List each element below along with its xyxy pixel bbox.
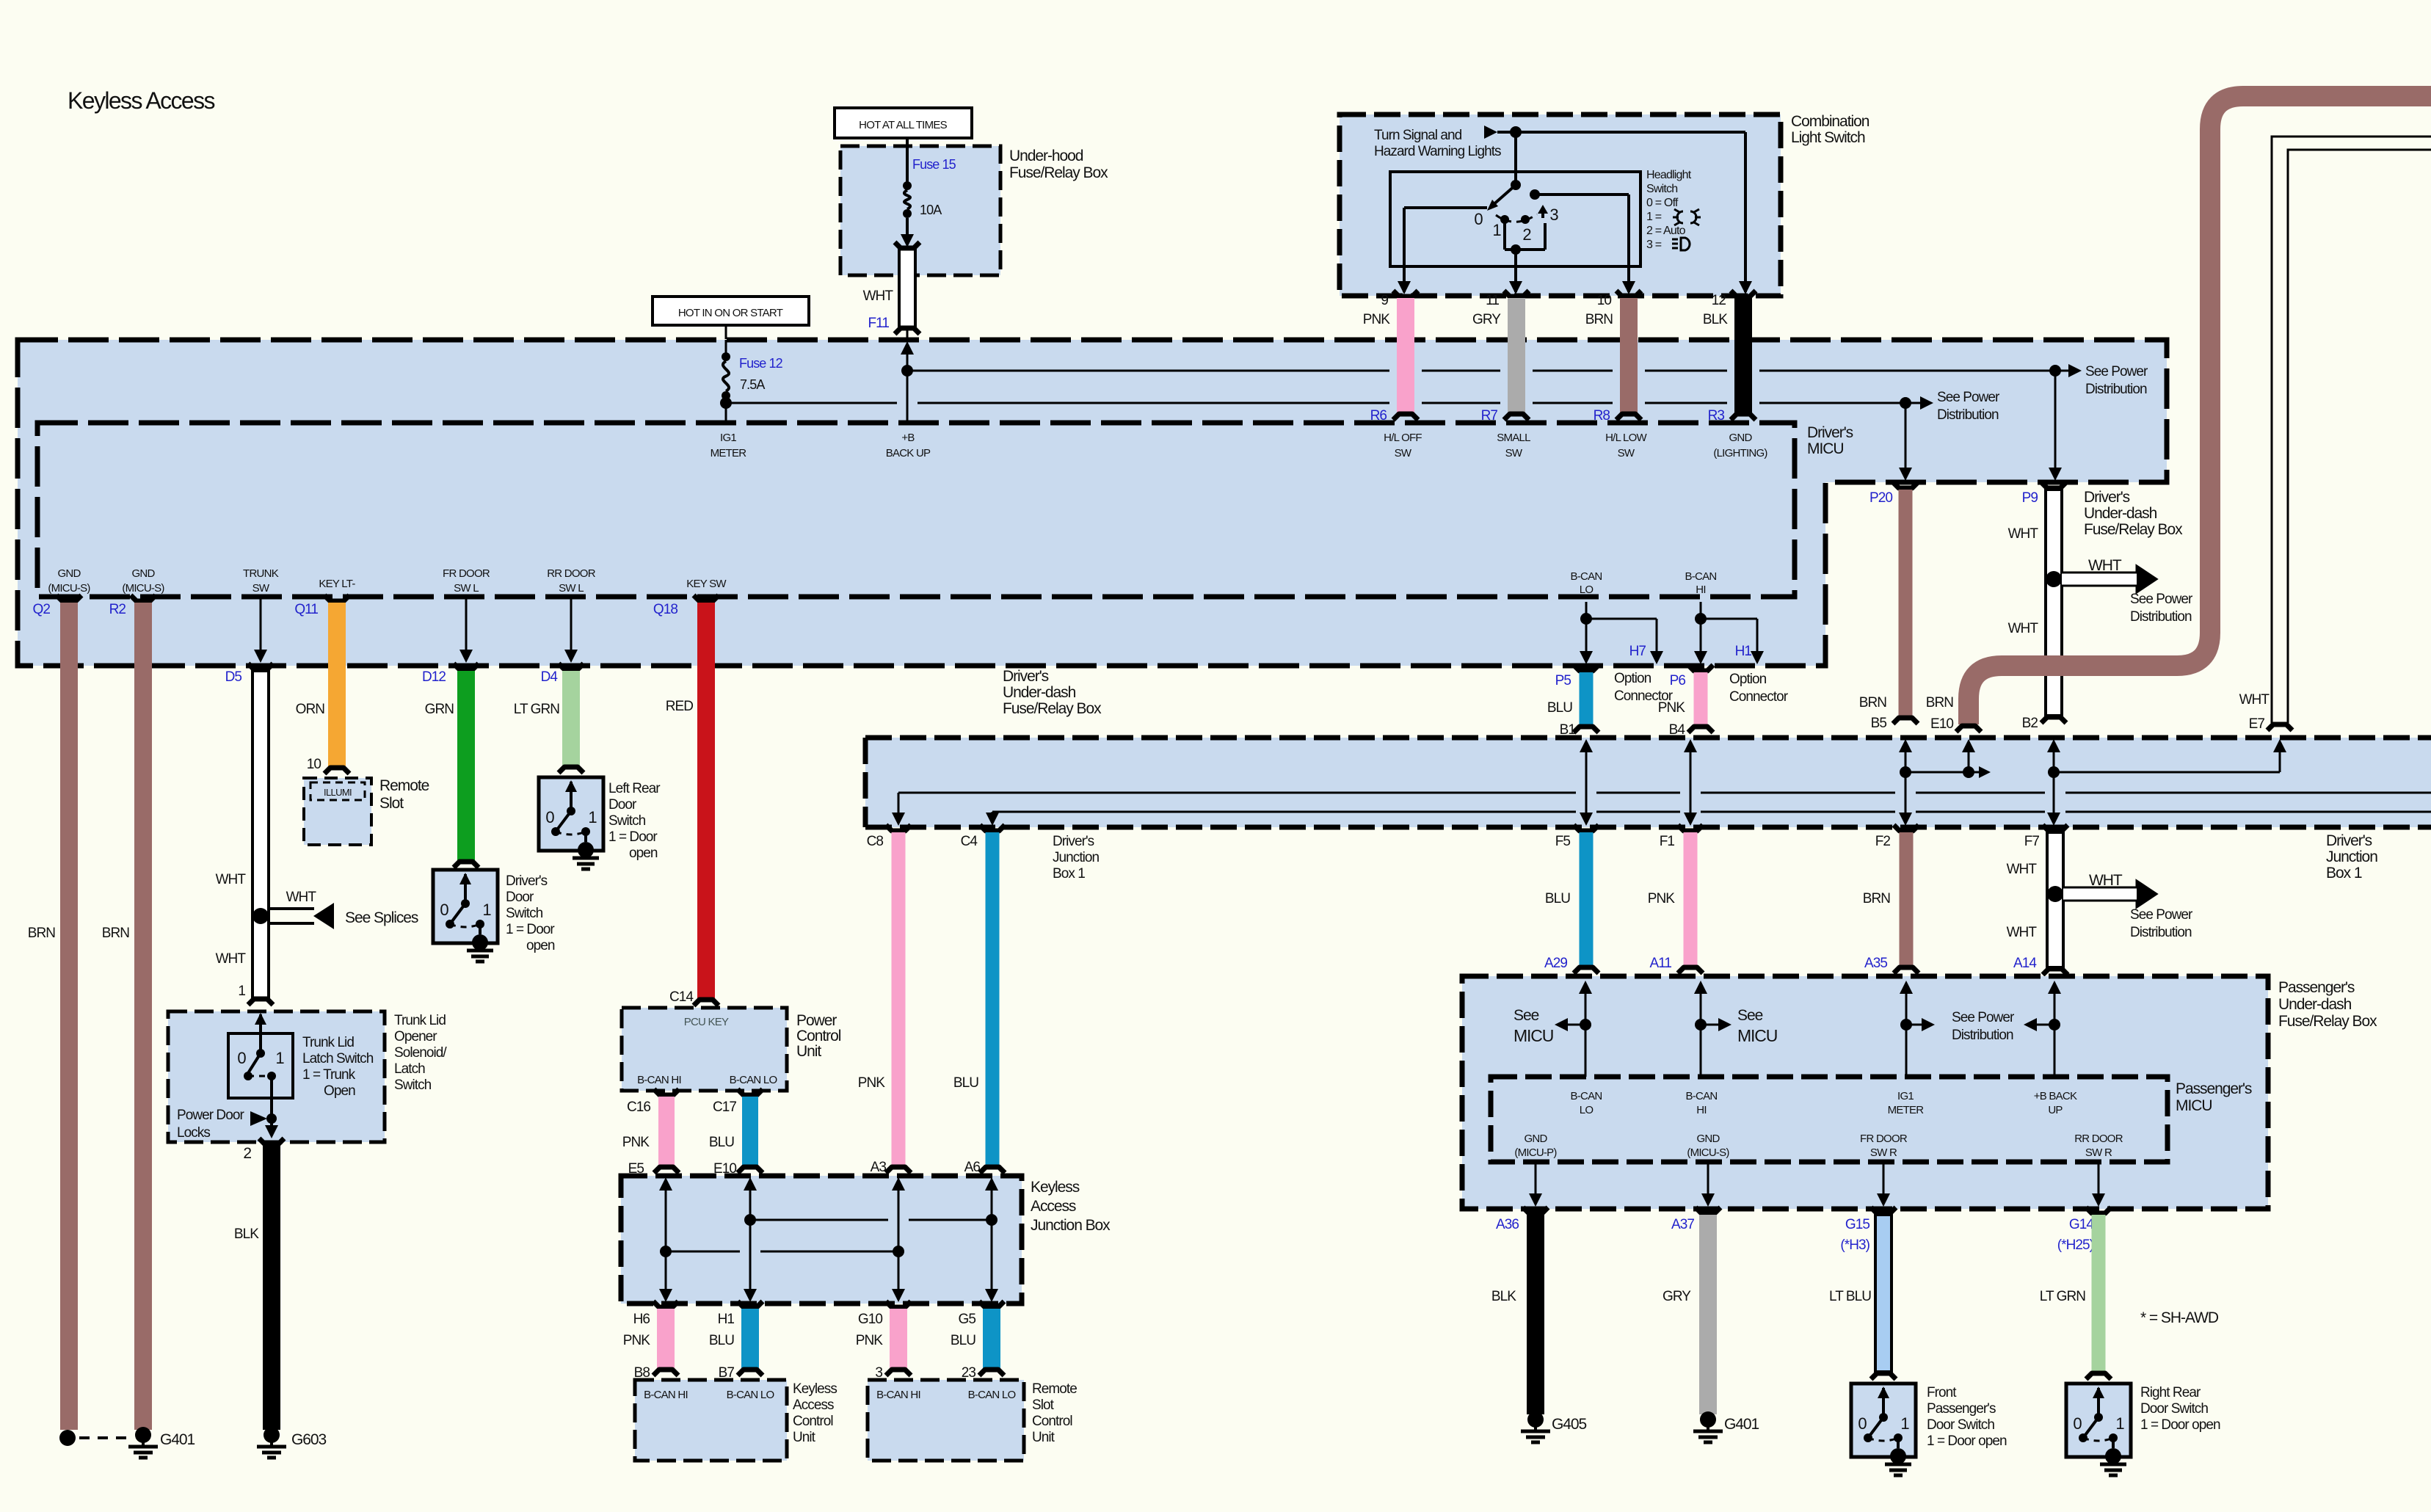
svg-text:Light Switch: Light Switch (1791, 129, 1865, 146)
svg-text:Access: Access (1031, 1198, 1076, 1215)
svg-text:BLU: BLU (709, 1333, 734, 1348)
svg-text:A29: A29 (1544, 956, 1567, 971)
svg-text:F7: F7 (2024, 834, 2040, 849)
svg-text:Box 1: Box 1 (1053, 866, 1085, 882)
svg-text:P5: P5 (1555, 673, 1571, 688)
svg-text:(MICU-S): (MICU-S) (122, 582, 164, 595)
svg-text:FR DOOR: FR DOOR (1860, 1133, 1908, 1145)
svg-text:B-CAN LO: B-CAN LO (730, 1074, 777, 1086)
svg-text:WHT: WHT (2007, 925, 2038, 940)
svg-text:UP: UP (2048, 1104, 2063, 1116)
svg-text:H1: H1 (718, 1312, 735, 1327)
svg-text:open: open (526, 938, 555, 953)
svg-text:HOT AT ALL TIMES: HOT AT ALL TIMES (859, 119, 947, 131)
svg-text:2: 2 (1522, 225, 1531, 244)
svg-text:Option: Option (1614, 671, 1651, 686)
svg-text:R3: R3 (1708, 408, 1725, 424)
svg-text:See Power: See Power (2085, 364, 2148, 379)
svg-text:Driver's: Driver's (1053, 834, 1094, 849)
svg-text:G15: G15 (1845, 1217, 1869, 1232)
svg-text:FR DOOR: FR DOOR (443, 567, 490, 580)
svg-text:B-CAN: B-CAN (1571, 1090, 1602, 1102)
svg-text:See Power: See Power (2130, 907, 2193, 923)
svg-text:BLU: BLU (1547, 700, 1572, 716)
svg-text:3 =: 3 = (1646, 239, 1662, 251)
svg-text:Driver's: Driver's (506, 873, 548, 889)
svg-text:PNK: PNK (623, 1333, 650, 1348)
svg-text:Switch: Switch (394, 1077, 432, 1093)
svg-text:Latch Switch: Latch Switch (302, 1051, 374, 1066)
svg-text:1 = Door: 1 = Door (608, 829, 658, 845)
svg-text:BLU: BLU (1545, 891, 1570, 906)
svg-text:1: 1 (588, 808, 597, 826)
svg-text:SW: SW (252, 582, 270, 595)
svg-text:PNK: PNK (858, 1075, 885, 1091)
svg-text:G401: G401 (1724, 1416, 1759, 1433)
svg-text:BLK: BLK (1491, 1289, 1516, 1304)
svg-text:MICU: MICU (1807, 440, 1843, 457)
svg-text:BRN: BRN (1863, 891, 1890, 906)
svg-text:LT BLU: LT BLU (1829, 1289, 1871, 1304)
svg-text:HOT IN ON OR START: HOT IN ON OR START (678, 307, 783, 319)
svg-text:D5: D5 (225, 669, 242, 685)
svg-text:C14: C14 (669, 989, 694, 1005)
svg-text:Door: Door (506, 890, 534, 905)
svg-text:12: 12 (1712, 293, 1726, 308)
svg-text:Distribution: Distribution (2130, 925, 2192, 940)
svg-text:Passenger's: Passenger's (2278, 979, 2355, 996)
svg-text:RED: RED (666, 699, 693, 714)
svg-text:GRN: GRN (425, 702, 454, 717)
svg-text:LT GRN: LT GRN (2040, 1289, 2085, 1304)
svg-text:GRY: GRY (1472, 312, 1501, 327)
svg-text:0 = Off: 0 = Off (1646, 197, 1679, 209)
svg-text:RR DOOR: RR DOOR (547, 567, 596, 580)
svg-text:Distribution: Distribution (2085, 382, 2147, 397)
svg-text:SW: SW (1395, 447, 1412, 459)
svg-text:WHT: WHT (2239, 692, 2270, 708)
svg-text:2 = Auto: 2 = Auto (1646, 225, 1686, 237)
svg-text:1 = Door open: 1 = Door open (2140, 1417, 2220, 1433)
svg-text:Keyless: Keyless (1031, 1179, 1080, 1196)
svg-text:Left Rear: Left Rear (608, 781, 661, 796)
svg-text:Fuse/Relay Box: Fuse/Relay Box (2084, 521, 2183, 538)
svg-text:B-CAN LO: B-CAN LO (968, 1389, 1016, 1401)
svg-text:G405: G405 (1552, 1416, 1587, 1433)
svg-text:0: 0 (1858, 1414, 1867, 1433)
svg-text:Under-dash: Under-dash (2084, 505, 2157, 522)
svg-text:+B: +B (901, 432, 915, 444)
svg-text:0: 0 (440, 901, 448, 919)
svg-text:BRN: BRN (102, 926, 129, 941)
svg-text:B-CAN HI: B-CAN HI (644, 1389, 688, 1401)
svg-text:LO: LO (1580, 584, 1594, 596)
svg-text:H/L LOW: H/L LOW (1605, 432, 1647, 444)
svg-text:P9: P9 (2022, 490, 2038, 506)
svg-text:BLK: BLK (1703, 312, 1728, 327)
svg-text:10A: 10A (920, 203, 942, 217)
svg-text:3: 3 (1549, 206, 1558, 224)
svg-text:Power: Power (796, 1012, 837, 1029)
svg-text:Combination: Combination (1791, 113, 1869, 130)
svg-text:SMALL: SMALL (1497, 432, 1530, 444)
svg-text:F5: F5 (1555, 834, 1571, 849)
svg-text:B-CAN: B-CAN (1571, 570, 1602, 583)
svg-text:G5: G5 (959, 1312, 976, 1327)
svg-text:KEY SW: KEY SW (686, 578, 727, 590)
svg-text:Driver's: Driver's (1807, 424, 1853, 441)
svg-text:METER: METER (1888, 1104, 1925, 1116)
svg-text:B-CAN: B-CAN (1685, 570, 1717, 583)
svg-text:Unit: Unit (1032, 1430, 1055, 1445)
svg-text:MICU: MICU (2176, 1097, 2212, 1114)
svg-text:Power Door: Power Door (177, 1108, 244, 1123)
svg-text:+B BACK: +B BACK (2034, 1090, 2077, 1102)
svg-text:Under-hood: Under-hood (1009, 148, 1083, 164)
svg-text:0: 0 (545, 808, 554, 826)
svg-text:R6: R6 (1370, 408, 1387, 424)
svg-text:GND: GND (57, 567, 81, 580)
svg-text:B2: B2 (2022, 716, 2038, 731)
svg-text:(MICU-S): (MICU-S) (48, 582, 90, 595)
svg-text:Q18: Q18 (653, 602, 677, 617)
svg-text:H7: H7 (1629, 644, 1646, 659)
svg-text:7.5A: 7.5A (740, 377, 765, 392)
svg-text:WHT: WHT (2089, 872, 2123, 889)
svg-text:1 = Door open: 1 = Door open (1927, 1433, 2007, 1449)
svg-text:See Power: See Power (2130, 592, 2193, 607)
svg-text:BRN: BRN (1859, 695, 1886, 710)
svg-text:KEY LT-: KEY LT- (319, 578, 355, 590)
svg-text:Fuse/Relay Box: Fuse/Relay Box (2278, 1013, 2377, 1030)
svg-text:PNK: PNK (622, 1135, 650, 1150)
svg-text:0: 0 (1474, 210, 1483, 228)
svg-text:Fuse/Relay Box: Fuse/Relay Box (1003, 700, 1102, 717)
svg-text:B5: B5 (1871, 716, 1887, 731)
svg-text:IG1: IG1 (720, 432, 736, 444)
svg-text:A3: A3 (871, 1160, 887, 1175)
svg-text:PNK: PNK (1648, 891, 1675, 906)
svg-text:Connector: Connector (1729, 689, 1789, 705)
svg-text:1: 1 (482, 901, 491, 919)
svg-text:B-CAN: B-CAN (1686, 1090, 1718, 1102)
svg-text:1: 1 (1900, 1414, 1909, 1433)
svg-text:MICU: MICU (1737, 1026, 1777, 1045)
svg-text:F1: F1 (1660, 834, 1675, 849)
svg-text:LO: LO (1580, 1104, 1594, 1116)
svg-text:R7: R7 (1481, 408, 1498, 424)
svg-text:open: open (629, 846, 658, 861)
svg-text:C4: C4 (961, 834, 978, 849)
svg-text:SW: SW (1505, 447, 1523, 459)
svg-text:ILLUMI: ILLUMI (324, 787, 352, 798)
svg-text:P6: P6 (1670, 673, 1686, 688)
svg-text:10: 10 (1597, 293, 1612, 308)
svg-text:A14: A14 (2013, 956, 2037, 971)
svg-text:See Power: See Power (1952, 1010, 2015, 1025)
svg-text:0: 0 (2073, 1414, 2082, 1433)
svg-text:* = SH-AWD: * = SH-AWD (2140, 1309, 2219, 1326)
svg-text:H1: H1 (1735, 644, 1752, 659)
svg-text:SW L: SW L (454, 582, 479, 595)
svg-text:1: 1 (2115, 1414, 2124, 1433)
svg-text:Keyless: Keyless (793, 1381, 837, 1397)
svg-text:Keyless Access: Keyless Access (68, 87, 215, 114)
svg-text:Fuse/Relay Box: Fuse/Relay Box (1009, 164, 1108, 181)
svg-text:(*H3): (*H3) (1840, 1237, 1869, 1253)
svg-text:IG1: IG1 (1897, 1090, 1914, 1102)
svg-text:1: 1 (238, 984, 245, 999)
svg-text:D12: D12 (422, 669, 446, 685)
svg-text:BRN: BRN (28, 926, 55, 941)
svg-text:See: See (1514, 1007, 1539, 1024)
svg-text:WHT: WHT (216, 951, 247, 967)
svg-text:Junction Box: Junction Box (1031, 1217, 1111, 1234)
svg-text:PCU KEY: PCU KEY (684, 1016, 729, 1028)
svg-text:(MICU-S): (MICU-S) (1687, 1146, 1729, 1159)
svg-text:Driver's: Driver's (2326, 832, 2372, 849)
svg-text:Door: Door (608, 797, 637, 813)
svg-text:1 = Trunk: 1 = Trunk (302, 1067, 356, 1083)
svg-text:WHT: WHT (2008, 526, 2039, 542)
svg-text:A11: A11 (1649, 956, 1671, 971)
svg-text:1: 1 (275, 1049, 284, 1067)
svg-text:ORN: ORN (296, 702, 325, 717)
svg-text:Box 1: Box 1 (2326, 865, 2362, 882)
svg-text:Latch: Latch (394, 1061, 425, 1077)
svg-text:Trunk Lid: Trunk Lid (302, 1035, 354, 1050)
svg-text:1 =: 1 = (1646, 211, 1662, 223)
svg-text:SW: SW (1618, 447, 1635, 459)
svg-text:HI: HI (1696, 584, 1706, 596)
svg-text:LT GRN: LT GRN (514, 702, 559, 717)
svg-text:Slot: Slot (1032, 1397, 1055, 1413)
svg-text:1 = Door: 1 = Door (506, 922, 555, 937)
svg-text:Right Rear: Right Rear (2140, 1385, 2201, 1400)
svg-text:Under-dash: Under-dash (2278, 996, 2352, 1013)
svg-text:TRUNK: TRUNK (243, 567, 279, 580)
svg-text:B-CAN HI: B-CAN HI (876, 1389, 920, 1401)
svg-text:WHT: WHT (2007, 862, 2038, 877)
svg-text:RR DOOR: RR DOOR (2074, 1133, 2123, 1145)
svg-text:G401: G401 (160, 1431, 195, 1448)
svg-text:Distribution: Distribution (2130, 609, 2192, 625)
svg-text:Passenger's: Passenger's (2176, 1080, 2252, 1097)
svg-text:A36: A36 (1496, 1217, 1519, 1232)
svg-text:1: 1 (1492, 221, 1501, 239)
svg-text:Option: Option (1729, 672, 1767, 687)
svg-text:Unit: Unit (796, 1043, 821, 1060)
svg-text:Driver's: Driver's (2084, 489, 2130, 506)
svg-text:GND: GND (1524, 1133, 1547, 1145)
svg-text:G603: G603 (291, 1431, 327, 1448)
svg-text:BLK: BLK (234, 1226, 259, 1242)
svg-text:R2: R2 (109, 602, 126, 617)
svg-text:PNK: PNK (1363, 312, 1390, 327)
svg-text:G10: G10 (858, 1312, 882, 1327)
svg-text:SW L: SW L (559, 582, 584, 595)
svg-text:Front: Front (1927, 1385, 1957, 1400)
svg-text:Control: Control (793, 1414, 833, 1429)
svg-text:PNK: PNK (856, 1333, 883, 1348)
svg-text:SW R: SW R (1870, 1146, 1897, 1159)
svg-text:11: 11 (1486, 293, 1499, 308)
svg-text:Under-dash: Under-dash (1003, 684, 1076, 701)
svg-text:G14: G14 (2069, 1217, 2094, 1232)
svg-text:(MICU-P): (MICU-P) (1514, 1146, 1557, 1159)
svg-text:0: 0 (237, 1049, 246, 1067)
svg-text:Solenoid/: Solenoid/ (394, 1045, 447, 1061)
svg-text:Remote: Remote (1032, 1381, 1077, 1397)
svg-text:Distribution: Distribution (1952, 1028, 2013, 1043)
svg-text:METER: METER (711, 447, 747, 459)
svg-text:Remote: Remote (379, 777, 429, 794)
svg-text:Hazard Warning Lights: Hazard Warning Lights (1374, 144, 1501, 159)
svg-text:BACK UP: BACK UP (886, 447, 931, 459)
svg-text:WHT: WHT (216, 872, 247, 887)
svg-text:(*H25): (*H25) (2057, 1237, 2094, 1253)
svg-text:See Splices: See Splices (345, 909, 418, 926)
svg-text:BRN: BRN (1926, 695, 1953, 710)
svg-text:WHT: WHT (863, 288, 894, 304)
svg-text:R8: R8 (1594, 408, 1610, 424)
svg-text:H6: H6 (633, 1312, 650, 1327)
svg-text:Locks: Locks (177, 1125, 210, 1141)
svg-text:Door Switch: Door Switch (1927, 1417, 1994, 1433)
svg-text:Open: Open (324, 1083, 355, 1099)
svg-text:Control: Control (796, 1028, 841, 1044)
svg-text:MICU: MICU (1514, 1026, 1553, 1045)
svg-text:BRN: BRN (1585, 312, 1613, 327)
svg-text:GND: GND (1729, 432, 1752, 444)
svg-text:Switch: Switch (506, 906, 543, 921)
svg-text:2: 2 (243, 1145, 251, 1162)
svg-text:WHT: WHT (2008, 621, 2039, 636)
svg-text:C8: C8 (867, 834, 884, 849)
svg-text:PNK: PNK (1658, 700, 1685, 716)
svg-text:See Power: See Power (1937, 390, 2000, 405)
svg-text:BLU: BLU (709, 1135, 734, 1150)
svg-text:D4: D4 (541, 669, 559, 685)
svg-text:Door Switch: Door Switch (2140, 1401, 2208, 1417)
svg-text:F11: F11 (868, 316, 890, 331)
svg-text:Passenger's: Passenger's (1927, 1401, 1996, 1417)
svg-text:Control: Control (1032, 1414, 1072, 1429)
svg-text:A6: A6 (964, 1160, 981, 1175)
svg-text:WHT: WHT (2088, 557, 2122, 574)
svg-text:GND: GND (131, 567, 155, 580)
svg-text:Fuse 12: Fuse 12 (739, 356, 783, 371)
svg-text:H/L OFF: H/L OFF (1384, 432, 1422, 444)
svg-text:BLU: BLU (953, 1075, 978, 1091)
svg-text:C17: C17 (713, 1100, 736, 1115)
svg-text:10: 10 (307, 757, 321, 772)
svg-text:Unit: Unit (793, 1430, 816, 1445)
svg-text:Access: Access (793, 1397, 834, 1413)
svg-text:B-CAN LO: B-CAN LO (727, 1389, 774, 1401)
svg-text:Q2: Q2 (33, 602, 51, 617)
svg-text:Fuse 15: Fuse 15 (912, 157, 956, 172)
svg-text:B-CAN HI: B-CAN HI (637, 1074, 681, 1086)
svg-text:Turn Signal and: Turn Signal and (1374, 128, 1462, 143)
svg-text:Opener: Opener (394, 1029, 437, 1044)
svg-text:SW R: SW R (2085, 1146, 2112, 1159)
svg-text:Slot: Slot (379, 795, 404, 812)
svg-text:E10: E10 (1930, 716, 1953, 732)
svg-text:HI: HI (1696, 1104, 1707, 1116)
svg-text:Junction: Junction (2326, 848, 2377, 865)
svg-text:Driver's: Driver's (1003, 668, 1049, 685)
svg-text:A35: A35 (1864, 956, 1887, 971)
svg-text:Distribution: Distribution (1937, 407, 1999, 423)
svg-text:GRY: GRY (1663, 1289, 1691, 1304)
svg-text:A37: A37 (1671, 1217, 1694, 1232)
svg-text:(LIGHTING): (LIGHTING) (1713, 447, 1767, 459)
svg-text:P20: P20 (1869, 490, 1892, 506)
svg-text:Q11: Q11 (294, 602, 318, 617)
svg-text:BLU: BLU (951, 1333, 975, 1348)
svg-text:GND: GND (1696, 1133, 1720, 1145)
svg-text:Trunk Lid: Trunk Lid (394, 1013, 446, 1028)
svg-text:Switch: Switch (608, 813, 646, 829)
svg-text:E7: E7 (2249, 716, 2265, 732)
svg-text:See: See (1737, 1007, 1763, 1024)
svg-text:F2: F2 (1875, 834, 1891, 849)
svg-text:Headlight: Headlight (1646, 169, 1692, 181)
svg-text:Junction: Junction (1053, 850, 1100, 865)
svg-text:9: 9 (1381, 293, 1388, 308)
svg-text:WHT: WHT (286, 890, 317, 905)
svg-text:C16: C16 (627, 1100, 650, 1115)
svg-text:Switch: Switch (1646, 183, 1677, 195)
